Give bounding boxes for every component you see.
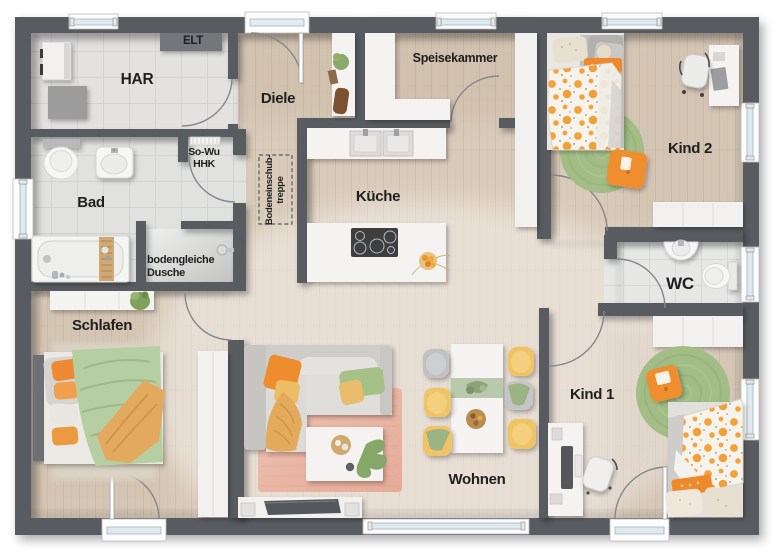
svg-text:So-Wu: So-Wu	[188, 146, 220, 158]
svg-text:ELT: ELT	[183, 35, 203, 47]
svg-text:Diele: Diele	[261, 90, 295, 107]
svg-text:Kind 2: Kind 2	[668, 140, 712, 157]
svg-text:Kind 1: Kind 1	[570, 386, 614, 403]
svg-text:Dusche: Dusche	[147, 267, 185, 279]
svg-text:Bad: Bad	[77, 194, 105, 211]
svg-text:HHK: HHK	[193, 158, 216, 170]
svg-text:HAR: HAR	[121, 71, 154, 88]
svg-text:Schlafen: Schlafen	[72, 317, 132, 334]
svg-text:Bodeneinschub-: Bodeneinschub-	[264, 155, 275, 225]
svg-text:Küche: Küche	[356, 188, 400, 205]
svg-text:Wohnen: Wohnen	[448, 471, 505, 488]
svg-text:WC: WC	[666, 274, 694, 293]
svg-text:Speisekammer: Speisekammer	[413, 51, 498, 65]
svg-text:treppe: treppe	[275, 176, 286, 203]
svg-text:bodengleiche: bodengleiche	[147, 254, 214, 266]
